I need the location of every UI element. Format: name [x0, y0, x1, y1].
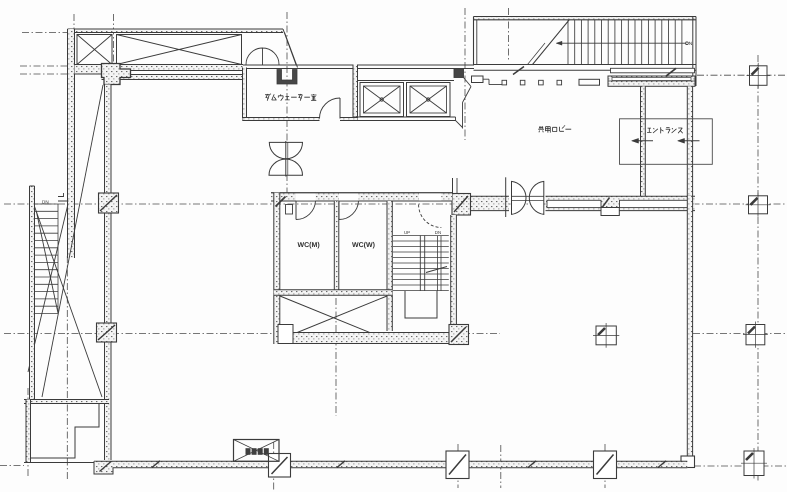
svg-text:DN: DN	[42, 200, 49, 205]
svg-text:DN: DN	[685, 41, 692, 47]
svg-text:DN: DN	[435, 230, 441, 235]
svg-text:UP: UP	[404, 230, 410, 235]
svg-text:WC(W): WC(W)	[352, 241, 375, 249]
svg-text:WC(M): WC(M)	[298, 241, 320, 249]
